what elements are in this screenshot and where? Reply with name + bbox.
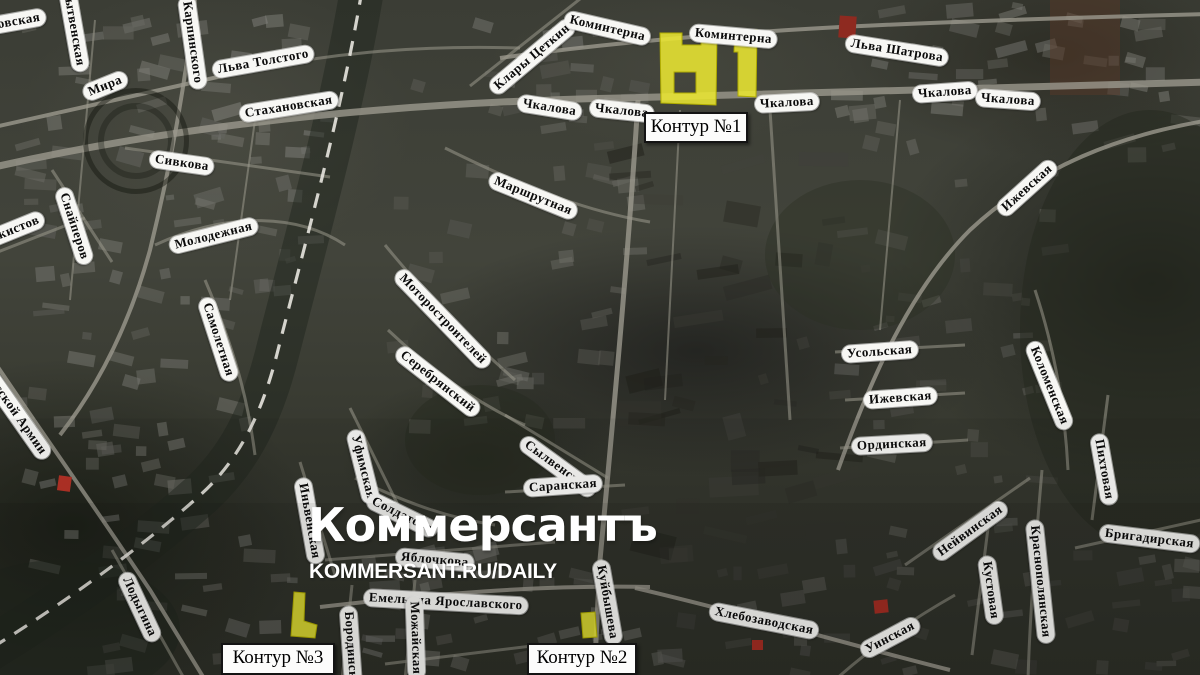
contour-callout: Контур №2: [527, 643, 637, 675]
kommersant-logo: Коммерсантъ: [308, 498, 657, 552]
satellite-map: СтахановскаяНытвенскаяКарпинскогоЛьва То…: [0, 0, 1200, 675]
tonal-bands: [0, 0, 1200, 675]
contour-callout: Контур №3: [221, 643, 335, 675]
contour-callout: Контур №1: [644, 112, 748, 143]
kommersant-url: KOMMERSANT.RU/DAILY: [309, 560, 557, 584]
